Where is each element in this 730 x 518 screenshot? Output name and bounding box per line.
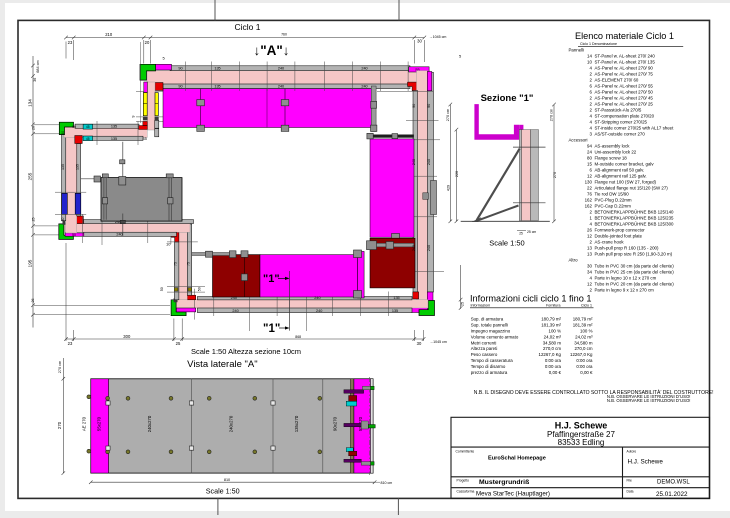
svg-text:135: 135 xyxy=(214,85,220,89)
svg-text:0,00 €: 0,00 € xyxy=(580,370,593,375)
svg-text:Meva StarTec (Hauptlager): Meva StarTec (Hauptlager) xyxy=(476,490,550,497)
svg-text:12: 12 xyxy=(587,174,592,179)
svg-text:90: 90 xyxy=(427,104,431,108)
svg-text:Double-jointed foot plate: Double-jointed foot plate xyxy=(595,234,643,239)
svg-text:Tubo in PVC 25 cm (da parte de: Tubo in PVC 25 cm (da parte del cliente) xyxy=(595,270,675,275)
svg-text:181,39 m²: 181,39 m² xyxy=(541,323,561,328)
svg-text:Cassaforma: Cassaforma xyxy=(457,490,475,494)
svg-text:34,580 m: 34,580 m xyxy=(574,340,593,345)
svg-text:50: 50 xyxy=(61,218,65,222)
svg-text:Fornitura: Fornitura xyxy=(546,303,560,307)
svg-text:45: 45 xyxy=(143,137,147,141)
svg-text:Informazioni cicli ciclo 1 fi: Informazioni cicli ciclo 1 fino 1 xyxy=(470,293,592,303)
svg-text:26: 26 xyxy=(587,228,592,233)
svg-text:26: 26 xyxy=(32,126,36,130)
svg-text:BETONIERKLAPPBÜHNE BKB 125/140: BETONIERKLAPPBÜHNE BKB 125/140 xyxy=(595,210,675,215)
svg-text:34,580 m: 34,580 m xyxy=(543,340,562,345)
svg-text:240: 240 xyxy=(361,66,367,70)
svg-text:80: 80 xyxy=(587,156,592,161)
svg-text:Tubo in PVC 30 cm (da parte de: Tubo in PVC 30 cm (da parte del cliente) xyxy=(595,264,675,269)
svg-text:180,79 m²: 180,79 m² xyxy=(573,317,593,322)
svg-text:30: 30 xyxy=(417,341,422,346)
svg-text:"1": "1" xyxy=(263,323,280,335)
svg-text:ST-Passstück-Alu 270/5: ST-Passstück-Alu 270/5 xyxy=(595,108,642,113)
svg-text:PVC-Cap D.22mm: PVC-Cap D.22mm xyxy=(595,204,632,209)
svg-text:10: 10 xyxy=(587,60,592,65)
svg-text:12267,0 Kg: 12267,0 Kg xyxy=(570,352,593,357)
svg-text:180,79 m²: 180,79 m² xyxy=(541,317,561,322)
svg-text:Volume cemento armato: Volume cemento armato xyxy=(471,334,519,339)
svg-text:26: 26 xyxy=(31,299,35,303)
svg-text:AB-alignment rail 50 galv.: AB-alignment rail 50 galv. xyxy=(595,168,645,173)
svg-text:Autore: Autore xyxy=(627,449,637,453)
svg-text:15: 15 xyxy=(587,162,592,167)
svg-text:0:00 ora: 0:00 ora xyxy=(576,364,593,369)
svg-text:Altro: Altro xyxy=(569,258,579,263)
svg-text:810: 810 xyxy=(224,478,230,482)
svg-text:23: 23 xyxy=(68,40,73,45)
svg-text:ST-Stripping corner 270/25: ST-Stripping corner 270/25 xyxy=(595,120,648,125)
svg-text:300: 300 xyxy=(123,334,131,339)
svg-text:255: 255 xyxy=(28,172,33,180)
svg-text:162: 162 xyxy=(585,204,593,209)
svg-text:0,00 €: 0,00 € xyxy=(549,370,562,375)
svg-text:ST-Panel w. AL-sheet 270/ 24: ST-Panel w. AL-sheet 270/ 240 xyxy=(595,54,656,59)
svg-text:30: 30 xyxy=(587,264,592,269)
svg-text:135: 135 xyxy=(76,164,80,170)
svg-text:270: 270 xyxy=(553,172,557,178)
svg-text:AS-assembly lock: AS-assembly lock xyxy=(595,144,631,149)
svg-text:DEMO.WSL: DEMO.WSL xyxy=(657,480,690,486)
svg-text:135: 135 xyxy=(393,296,399,300)
svg-text:12: 12 xyxy=(587,282,592,287)
svg-text:12: 12 xyxy=(587,234,592,239)
svg-text:210: 210 xyxy=(105,32,113,37)
svg-text:Metri correnti: Metri correnti xyxy=(471,340,497,345)
svg-text:94: 94 xyxy=(587,144,592,149)
svg-text:→1045 cm: →1045 cm xyxy=(429,35,446,39)
svg-text:Uni-assembly lock 22: Uni-assembly lock 22 xyxy=(595,150,637,155)
svg-text:Ciclo 1: Ciclo 1 xyxy=(235,22,261,32)
svg-text:135: 135 xyxy=(392,309,398,313)
svg-text:90: 90 xyxy=(72,125,76,129)
svg-text:ST-inside corner 270/25 with A: ST-inside corner 270/25 with AL17 sheet xyxy=(595,126,675,131)
svg-text:24: 24 xyxy=(587,150,592,155)
svg-text:195: 195 xyxy=(28,259,33,267)
svg-text:File: File xyxy=(627,479,632,483)
svg-text:240: 240 xyxy=(361,85,367,89)
svg-text:83533 Edling: 83533 Edling xyxy=(558,438,605,447)
svg-text:Ciclo 1 Denominazione: Ciclo 1 Denominazione xyxy=(580,42,617,46)
svg-text:↓"A"↓: ↓"A"↓ xyxy=(253,43,289,58)
svg-text:75: 75 xyxy=(187,262,191,266)
svg-text:AS/ST-outside corner 270: AS/ST-outside corner 270 xyxy=(595,132,646,137)
svg-text:270 cm: 270 cm xyxy=(446,109,450,121)
svg-text:Altezza pareti: Altezza pareti xyxy=(471,346,498,351)
svg-text:Flange nut 100 (SW 27, forged): Flange nut 100 (SW 27, forged) xyxy=(595,180,657,185)
svg-text:Data: Data xyxy=(627,490,634,494)
svg-text:25: 25 xyxy=(176,341,181,346)
svg-text:25: 25 xyxy=(519,231,523,235)
svg-text:75: 75 xyxy=(174,262,178,266)
svg-text:13: 13 xyxy=(587,246,592,251)
svg-text:AS-Panel w. AL-sheet 270/ 2: AS-Panel w. AL-sheet 270/ 25 xyxy=(595,102,654,107)
svg-text:Mustergrundriß: Mustergrundriß xyxy=(479,479,529,486)
svg-text:135: 135 xyxy=(111,124,117,128)
svg-text:24,02 m³: 24,02 m³ xyxy=(575,334,593,339)
svg-text:M-outside corner bracket, galv: M-outside corner bracket, galv xyxy=(595,162,655,167)
svg-text:AS-Panel w. AL-sheet 270/ 5: AS-Panel w. AL-sheet 270/ 55 xyxy=(595,84,654,89)
svg-text:23: 23 xyxy=(68,341,73,346)
svg-text:240: 240 xyxy=(278,85,284,89)
svg-text:Scale 1:50: Scale 1:50 xyxy=(206,487,240,496)
svg-text:13: 13 xyxy=(587,252,592,257)
svg-text:Push pull prop size R 250 (1,: Push pull prop size R 250 (1,90-3,20 m) xyxy=(595,252,673,257)
svg-text:135: 135 xyxy=(61,164,65,170)
svg-text:14: 14 xyxy=(587,54,592,59)
svg-text:Scale 1:50 Altezza sezione 1: Scale 1:50 Altezza sezione 10cm xyxy=(191,347,301,356)
svg-text:Elenco materiale Ciclo 1: Elenco materiale Ciclo 1 xyxy=(575,31,674,41)
svg-text:Sezione "1": Sezione "1" xyxy=(481,93,534,104)
svg-text:240: 240 xyxy=(314,296,320,300)
svg-text:Tie rod DW 15/90: Tie rod DW 15/90 xyxy=(595,192,630,197)
svg-text:240: 240 xyxy=(316,309,322,313)
svg-text:Peso cassero: Peso cassero xyxy=(471,352,498,357)
svg-text:25.01.2022: 25.01.2022 xyxy=(656,491,688,498)
svg-text:Accessori: Accessori xyxy=(569,138,588,143)
svg-text:25 cm: 25 cm xyxy=(527,230,536,234)
svg-text:760: 760 xyxy=(281,33,287,37)
svg-text:AB-alignment rail 125 galv.: AB-alignment rail 125 galv. xyxy=(595,174,647,179)
svg-text:45: 45 xyxy=(86,137,90,141)
svg-text:135: 135 xyxy=(111,137,117,141)
svg-text:90: 90 xyxy=(412,104,416,108)
svg-text:Tubo in PVC 20 cm (da parte de: Tubo in PVC 20 cm (da parte del cliente) xyxy=(595,282,675,287)
svg-text:Parte in legno 9 x 12 x 270 cm: Parte in legno 9 x 12 x 270 cm xyxy=(595,288,655,293)
svg-text:"1": "1" xyxy=(263,273,280,285)
svg-text:684 cm: 684 cm xyxy=(36,60,40,72)
svg-text:240: 240 xyxy=(412,245,416,251)
svg-text:0:00 ora: 0:00 ora xyxy=(576,358,593,363)
svg-text:AS-Panel w. AL-sheet 270/ 9: AS-Panel w. AL-sheet 270/ 90 xyxy=(595,66,654,71)
svg-text:AS-ELEMENT 270/ 60: AS-ELEMENT 270/ 60 xyxy=(595,78,639,83)
svg-text:AS-Panel w. AL-sheet 270/ 4: AS-Panel w. AL-sheet 270/ 45 xyxy=(595,96,654,101)
svg-text:Push-pull prop R 160 (135 - 20: Push-pull prop R 160 (135 - 200) xyxy=(595,246,659,251)
svg-text:10: 10 xyxy=(166,242,171,247)
svg-text:76: 76 xyxy=(587,192,592,197)
svg-text:Tempo di casseratura: Tempo di casseratura xyxy=(471,358,514,363)
svg-text:55x270: 55x270 xyxy=(97,416,102,431)
svg-text:240: 240 xyxy=(427,159,431,165)
svg-text:EuroSchal Homepage: EuroSchal Homepage xyxy=(488,456,546,462)
svg-text:ST-compensation plate 270/20: ST-compensation plate 270/20 xyxy=(595,114,655,119)
svg-text:270 cm: 270 cm xyxy=(550,109,554,121)
svg-text:Scale 1:50: Scale 1:50 xyxy=(489,238,524,247)
svg-text:90x270: 90x270 xyxy=(333,416,338,431)
svg-text:100 %: 100 % xyxy=(549,329,562,334)
svg-text:H.J. Schewe: H.J. Schewe xyxy=(628,458,664,465)
svg-text:240: 240 xyxy=(232,309,238,313)
svg-text:50: 50 xyxy=(72,233,76,237)
svg-text:240x270: 240x270 xyxy=(147,415,152,432)
svg-text:PVC-Plug D.22mm: PVC-Plug D.22mm xyxy=(595,198,632,203)
svg-text:AS-Panel w. AL-sheet 270/ 7: AS-Panel w. AL-sheet 270/ 75 xyxy=(595,72,654,77)
svg-text:AE 270: AE 270 xyxy=(82,416,87,431)
svg-text:Informazioni: Informazioni xyxy=(471,303,491,307)
svg-text:134: 134 xyxy=(28,99,33,107)
svg-text:Ciclo 1: Ciclo 1 xyxy=(581,303,592,307)
svg-text:135x270: 135x270 xyxy=(294,415,299,432)
svg-text:BETONIERKLAPPBÜHNE BKB 125/300: BETONIERKLAPPBÜHNE BKB 125/300 xyxy=(595,222,675,227)
svg-text:20: 20 xyxy=(145,40,150,45)
svg-text:BETONIERKLAPPBÜHNE BKB 125/235: BETONIERKLAPPBÜHNE BKB 125/235 xyxy=(595,216,675,221)
svg-text:22: 22 xyxy=(587,186,592,191)
svg-text:429: 429 xyxy=(447,185,451,191)
svg-text:Formwork-prop connector: Formwork-prop connector xyxy=(595,228,646,233)
svg-text:Sup. di armatura: Sup. di armatura xyxy=(471,317,504,322)
svg-text:90: 90 xyxy=(178,66,182,70)
svg-text:34: 34 xyxy=(587,270,592,275)
svg-text:AS-Panel w. AL-sheet 270/ 5: AS-Panel w. AL-sheet 270/ 50 xyxy=(595,90,654,95)
svg-text:Tempo di disarmo: Tempo di disarmo xyxy=(471,364,506,369)
svg-text:→1045 cm: →1045 cm xyxy=(430,340,447,344)
svg-text:Impegno magazzino: Impegno magazzino xyxy=(471,329,511,334)
svg-text:90: 90 xyxy=(178,85,182,89)
svg-text:24,02 m³: 24,02 m³ xyxy=(544,334,562,339)
svg-text:25: 25 xyxy=(461,302,465,306)
svg-text:9: 9 xyxy=(132,115,136,117)
svg-text:Parte in legno 10 x 12 x 270 c: Parte in legno 10 x 12 x 270 cm xyxy=(595,276,657,281)
svg-text:220: 220 xyxy=(455,171,459,177)
svg-text:50: 50 xyxy=(197,287,201,291)
svg-text:868: 868 xyxy=(295,335,301,339)
svg-text:12267,0 Kg: 12267,0 Kg xyxy=(539,352,562,357)
svg-text:181,39 m²: 181,39 m² xyxy=(573,323,593,328)
svg-text:45: 45 xyxy=(86,125,90,129)
svg-text:AS-crane hook: AS-crane hook xyxy=(595,240,625,245)
svg-text:270,0 cm: 270,0 cm xyxy=(543,346,561,351)
svg-text:prezzo di armatura: prezzo di armatura xyxy=(471,370,508,375)
svg-text:Flange screw 18: Flange screw 18 xyxy=(595,156,628,161)
svg-text:100 %: 100 % xyxy=(580,329,593,334)
svg-text:240x270: 240x270 xyxy=(228,415,233,432)
svg-text:810 cm: 810 cm xyxy=(381,481,393,485)
svg-text:36: 36 xyxy=(33,78,37,82)
svg-text:N.B. OSSERVARE LE ISTRUZIONI D: N.B. OSSERVARE LE ISTRUZIONI D’USO! xyxy=(607,398,691,403)
svg-text:240: 240 xyxy=(412,159,416,165)
svg-text:0:00 ora: 0:00 ora xyxy=(545,364,562,369)
svg-text:270: 270 xyxy=(57,421,62,429)
svg-text:Sup. totale pannelli: Sup. totale pannelli xyxy=(471,323,508,328)
svg-text:0:00 ora: 0:00 ora xyxy=(545,358,562,363)
svg-text:240: 240 xyxy=(278,66,284,70)
svg-text:Articulated flange nut 15/120: Articulated flange nut 15/120 (SW 27) xyxy=(595,186,669,191)
svg-text:240: 240 xyxy=(116,233,122,237)
svg-text:135: 135 xyxy=(214,66,220,70)
svg-text:25: 25 xyxy=(32,218,36,222)
svg-text:Pannelli: Pannelli xyxy=(569,48,585,53)
svg-text:240: 240 xyxy=(427,245,431,251)
svg-text:270 cm: 270 cm xyxy=(58,361,62,373)
svg-text:50: 50 xyxy=(61,131,65,135)
svg-text:270,0 cm: 270,0 cm xyxy=(574,346,592,351)
svg-text:30: 30 xyxy=(417,39,422,44)
svg-text:240: 240 xyxy=(231,296,237,300)
svg-text:ST-Panel w. AL-sheet 270/ 13: ST-Panel w. AL-sheet 270/ 135 xyxy=(595,60,656,65)
svg-text:Progetto: Progetto xyxy=(457,479,470,483)
svg-text:162: 162 xyxy=(585,198,593,203)
svg-text:50: 50 xyxy=(160,287,164,291)
svg-text:Committente: Committente xyxy=(456,449,475,453)
svg-text:Vista laterale "A": Vista laterale "A" xyxy=(187,359,257,370)
svg-text:130: 130 xyxy=(585,180,593,185)
